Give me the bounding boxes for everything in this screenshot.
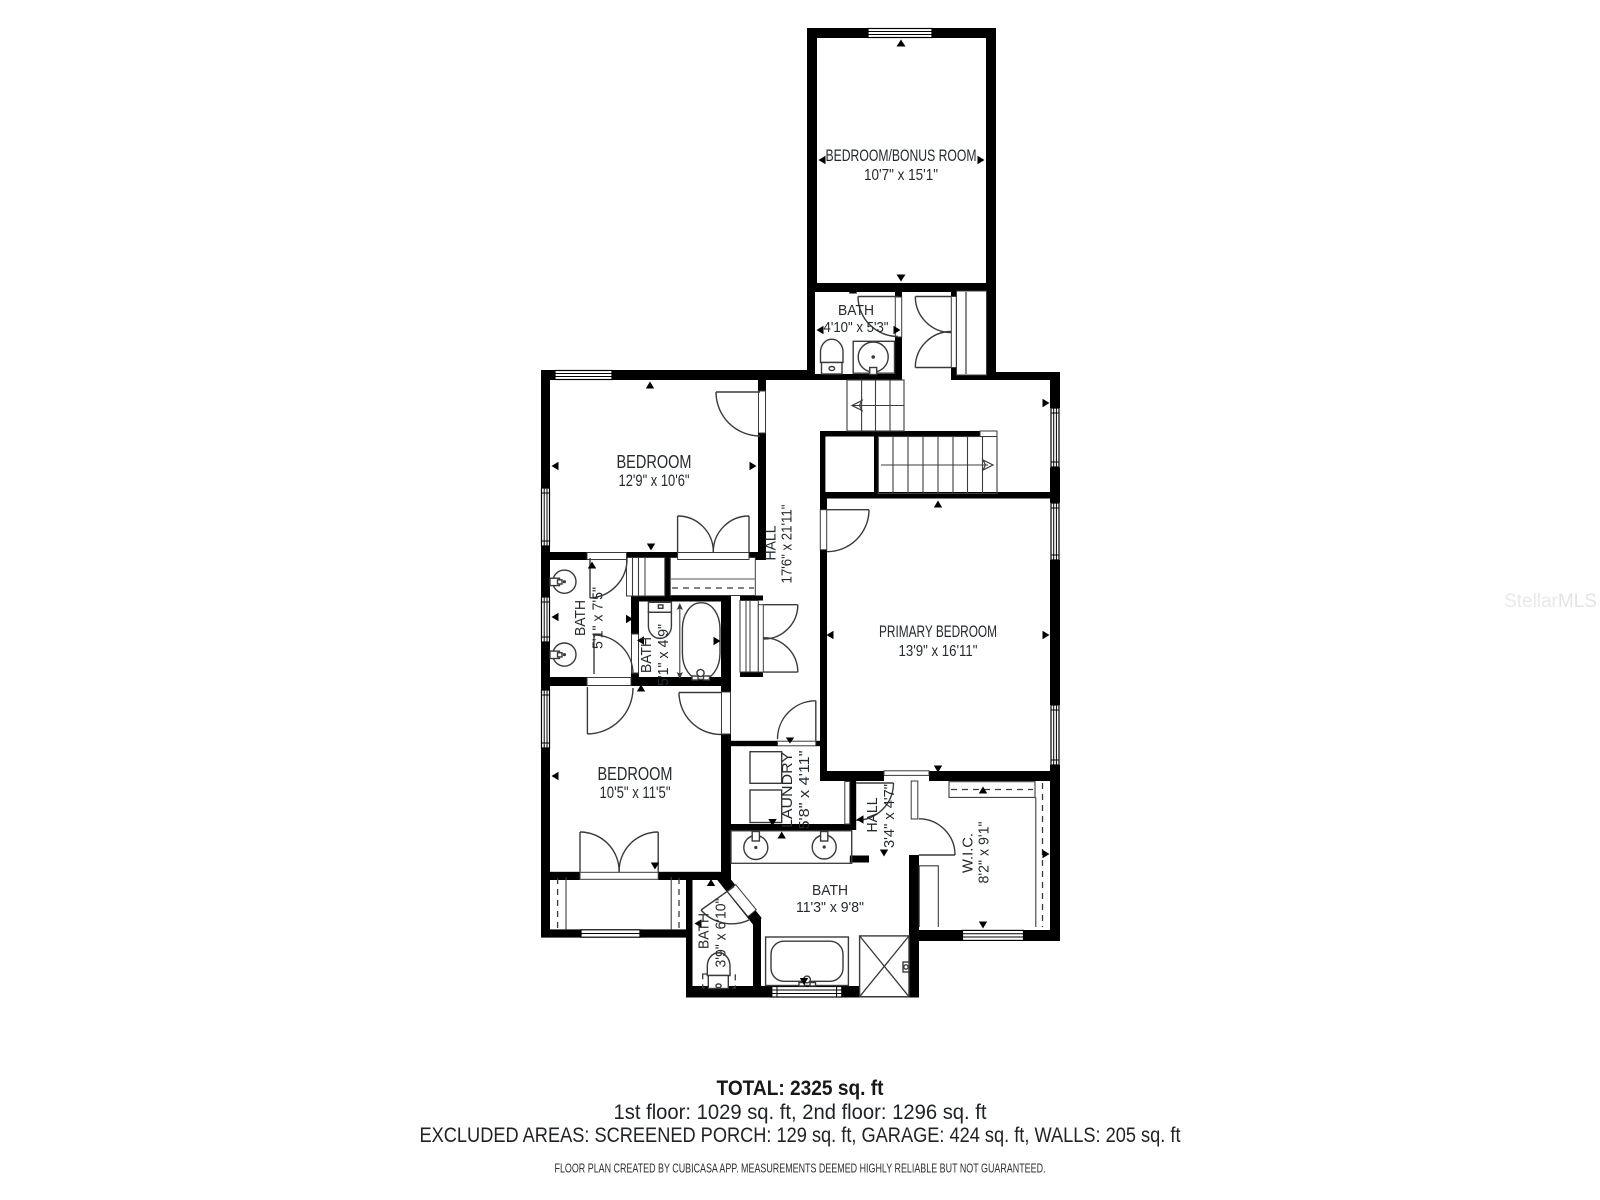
svg-text:5'1" x 7'5": 5'1" x 7'5" [590,587,607,649]
svg-text:17'6" x 21'11": 17'6" x 21'11" [779,505,796,584]
svg-text:HALL: HALL [763,526,780,561]
svg-text:BATH: BATH [696,913,713,949]
svg-text:FLOOR PLAN CREATED BY CUBICASA: FLOOR PLAN CREATED BY CUBICASA APP. MEAS… [555,1162,1046,1176]
svg-text:10'5" x 11'5": 10'5" x 11'5" [600,783,671,802]
svg-text:11'3" x 9'8": 11'3" x 9'8" [796,899,864,916]
svg-text:5'1" x 4'9": 5'1" x 4'9" [655,624,672,686]
svg-text:PRIMARY BEDROOM: PRIMARY BEDROOM [879,623,997,641]
svg-text:HALL: HALL [864,798,881,833]
svg-text:W.I.C.: W.I.C. [960,833,977,873]
svg-text:12'9" x 10'6": 12'9" x 10'6" [619,471,690,490]
svg-text:StellarMLS: StellarMLS [1504,591,1597,612]
svg-text:5'8" x 4'11": 5'8" x 4'11" [796,751,813,830]
svg-text:LAUNDRY: LAUNDRY [779,752,796,828]
svg-text:TOTAL: 2325 sq. ft: TOTAL: 2325 sq. ft [717,1076,884,1100]
svg-text:BATH: BATH [812,882,848,899]
svg-text:1st floor: 1029 sq. ft, 2nd fl: 1st floor: 1029 sq. ft, 2nd floor: 1296 … [614,1100,987,1124]
svg-text:EXCLUDED AREAS: SCREENED PORCH: EXCLUDED AREAS: SCREENED PORCH: 129 sq. … [420,1123,1181,1147]
svg-text:BATH: BATH [638,637,655,673]
svg-text:8'2" x 9'1": 8'2" x 9'1" [976,822,993,884]
svg-text:BATH: BATH [838,302,874,319]
svg-text:10'7" x 15'1": 10'7" x 15'1" [864,167,938,184]
svg-text:BEDROOM: BEDROOM [598,763,673,784]
svg-text:13'9" x 16'11": 13'9" x 16'11" [899,643,978,660]
svg-text:3'9" x 6'10": 3'9" x 6'10" [713,899,730,968]
svg-text:4'10" x 5'3": 4'10" x 5'3" [824,319,889,336]
svg-text:BATH: BATH [572,600,589,636]
svg-text:3'4" x 4'7": 3'4" x 4'7" [881,784,898,848]
svg-text:BEDROOM: BEDROOM [617,451,692,472]
svg-text:BEDROOM/BONUS ROOM: BEDROOM/BONUS ROOM [826,147,977,165]
